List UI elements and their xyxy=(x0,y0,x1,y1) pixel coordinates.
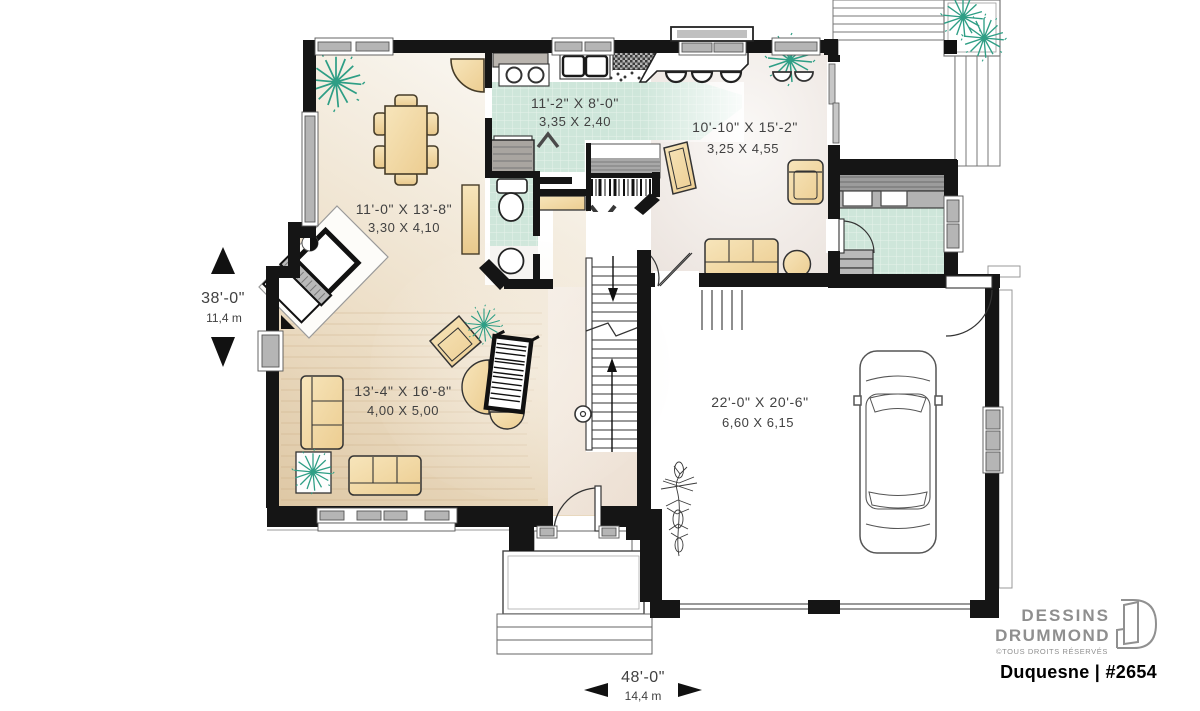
svg-text:13'-4" X 16'-8": 13'-4" X 16'-8" xyxy=(354,383,451,399)
svg-text:10'-10" X 15'-2": 10'-10" X 15'-2" xyxy=(692,119,798,135)
svg-text:3,25 X 4,55: 3,25 X 4,55 xyxy=(707,141,779,156)
svg-text:DESSINS: DESSINS xyxy=(1021,606,1110,625)
svg-text:6,60 X 6,15: 6,60 X 6,15 xyxy=(722,415,794,430)
svg-text:4,00 X 5,00: 4,00 X 5,00 xyxy=(367,403,439,418)
svg-text:3,30 X 4,10: 3,30 X 4,10 xyxy=(368,220,440,235)
svg-text:3,35 X 2,40: 3,35 X 2,40 xyxy=(539,114,611,129)
svg-text:Duquesne | #2654: Duquesne | #2654 xyxy=(1000,662,1157,682)
svg-text:14,4 m: 14,4 m xyxy=(625,689,662,703)
svg-text:11,4 m: 11,4 m xyxy=(206,311,242,325)
svg-text:38'-0": 38'-0" xyxy=(201,290,245,307)
svg-text:48'-0": 48'-0" xyxy=(621,669,665,686)
svg-text:11'-0" X 13'-8": 11'-0" X 13'-8" xyxy=(356,201,452,217)
svg-text:DRUMMOND: DRUMMOND xyxy=(995,626,1110,645)
svg-text:11'-2" X 8'-0": 11'-2" X 8'-0" xyxy=(531,95,619,111)
svg-text:22'-0" X 20'-6": 22'-0" X 20'-6" xyxy=(711,394,808,410)
svg-text:©TOUS DROITS RÉSERVÉS: ©TOUS DROITS RÉSERVÉS xyxy=(996,647,1108,656)
